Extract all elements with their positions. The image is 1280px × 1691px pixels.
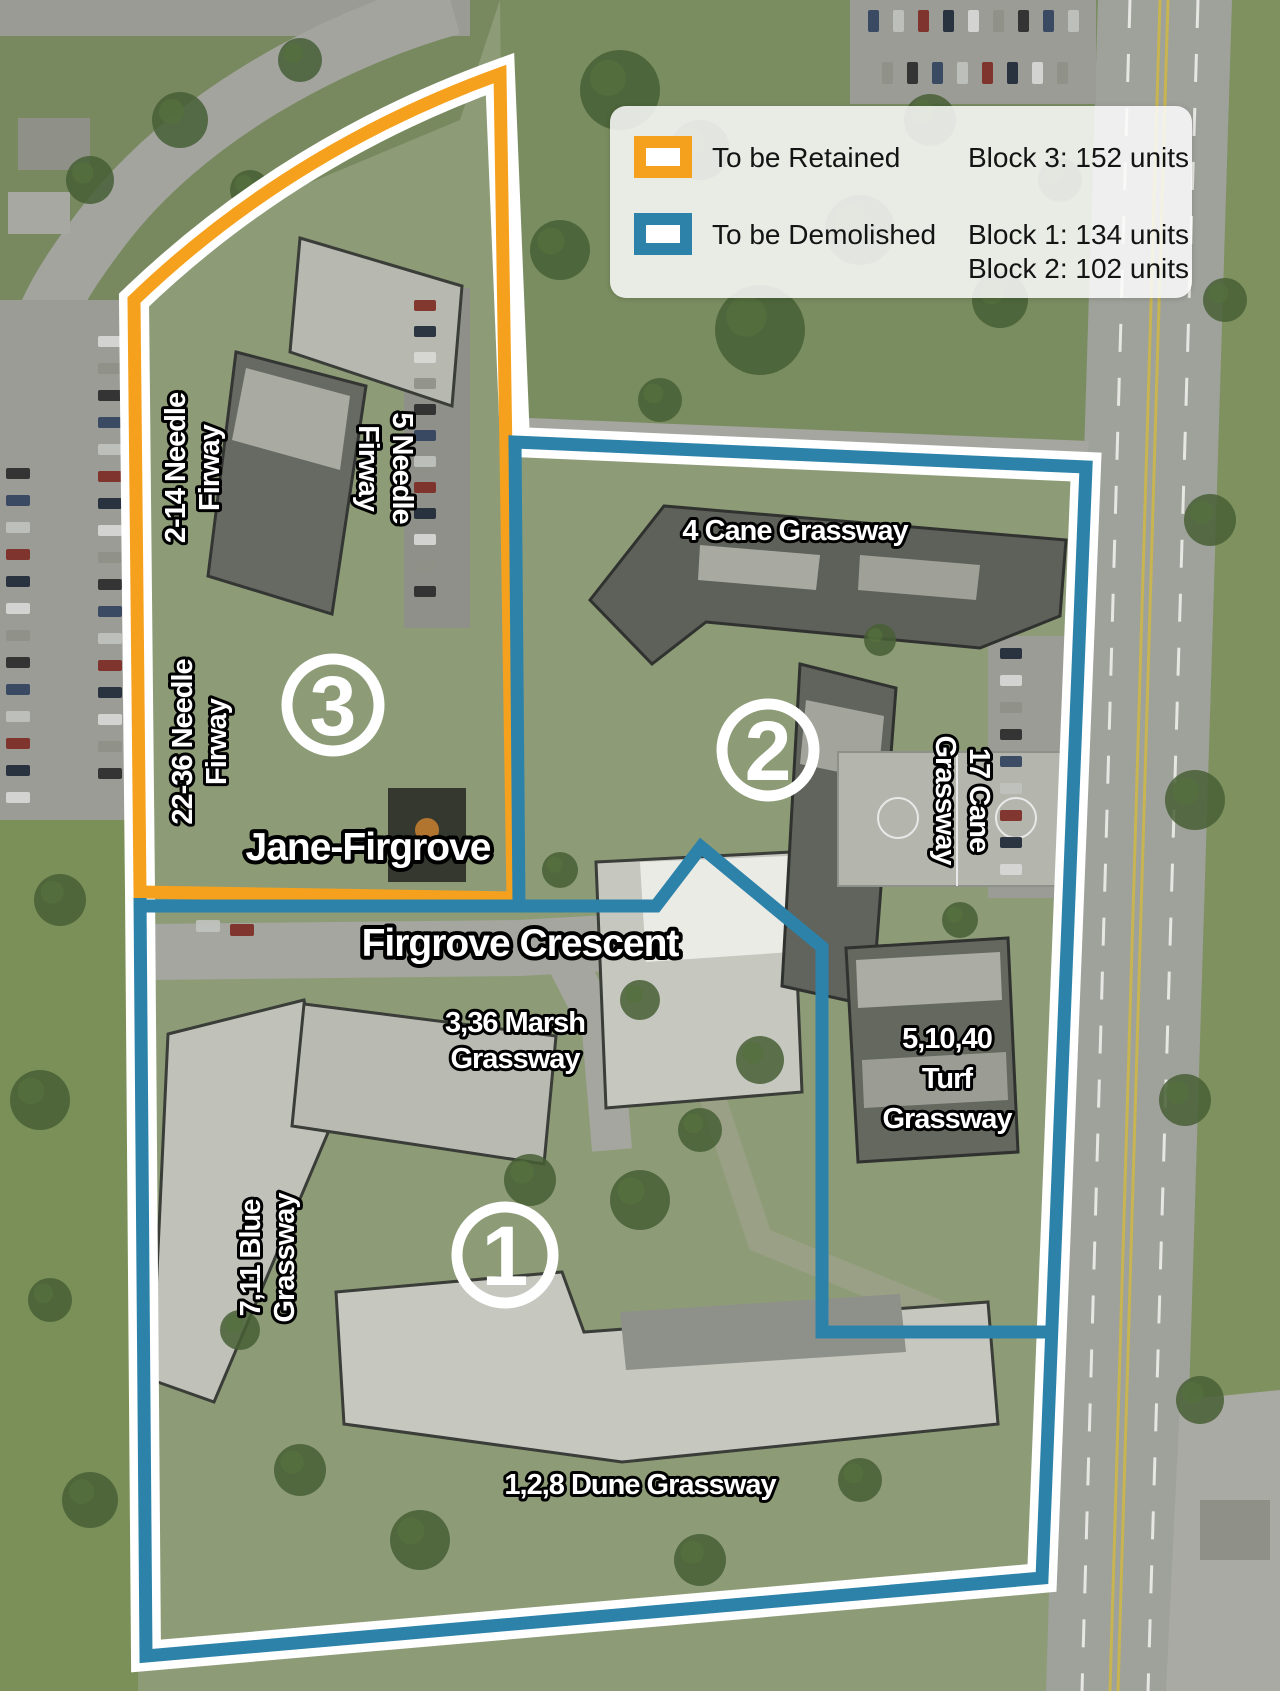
label-marsh-grassway: Grassway [450, 1043, 580, 1075]
label-line: 2-14 Needle [160, 392, 192, 543]
label-line: 22-36 Needle [167, 658, 199, 824]
demolished-swatch [634, 213, 692, 255]
label-turf-grassway: Grassway [882, 1103, 1012, 1135]
retained-swatch-rect [640, 142, 686, 172]
block3-number: 3 [310, 659, 357, 753]
label-line: 17 Cane [963, 748, 995, 853]
label-line: Firway [194, 424, 226, 511]
label-turf-grassway: 5,10,40 [902, 1023, 992, 1055]
label-line: Grassway [929, 735, 961, 865]
block2-number: 2 [745, 704, 792, 798]
label-line: Firway [352, 425, 384, 512]
label-line: Grassway [269, 1193, 301, 1323]
label-4-cane-grassway: 4 Cane Grassway [682, 515, 908, 547]
label-line: 5 Needle [386, 412, 418, 524]
label-marsh-grassway: 3,36 Marsh [445, 1007, 585, 1039]
retained-label: To be Retained [712, 142, 900, 174]
demolished-units-block1: Block 1: 134 units [968, 219, 1189, 251]
block1-number: 1 [482, 1209, 529, 1303]
label-dune-grassway: 1,2,8 Dune Grassway [504, 1469, 776, 1501]
label-firgrove-crescent: Firgrove Crescent [362, 922, 680, 965]
demolished-label: To be Demolished [712, 219, 936, 251]
site-plan-map: { "legend": { "retained": { "label": "To… [0, 0, 1280, 1691]
label-jane-firgrove: Jane-Firgrove [246, 826, 491, 869]
retained-swatch [634, 136, 692, 178]
label-line: Firway [201, 698, 233, 785]
label-line: 7,11 Blue [235, 1199, 267, 1317]
label-turf-grassway: Turf [922, 1063, 974, 1095]
demolished-units-block2: Block 2: 102 units [968, 253, 1189, 285]
retained-units: Block 3: 152 units [968, 142, 1189, 174]
legend: To be Retained Block 3: 152 units To be … [610, 106, 1192, 298]
demolished-swatch-rect [640, 219, 686, 249]
